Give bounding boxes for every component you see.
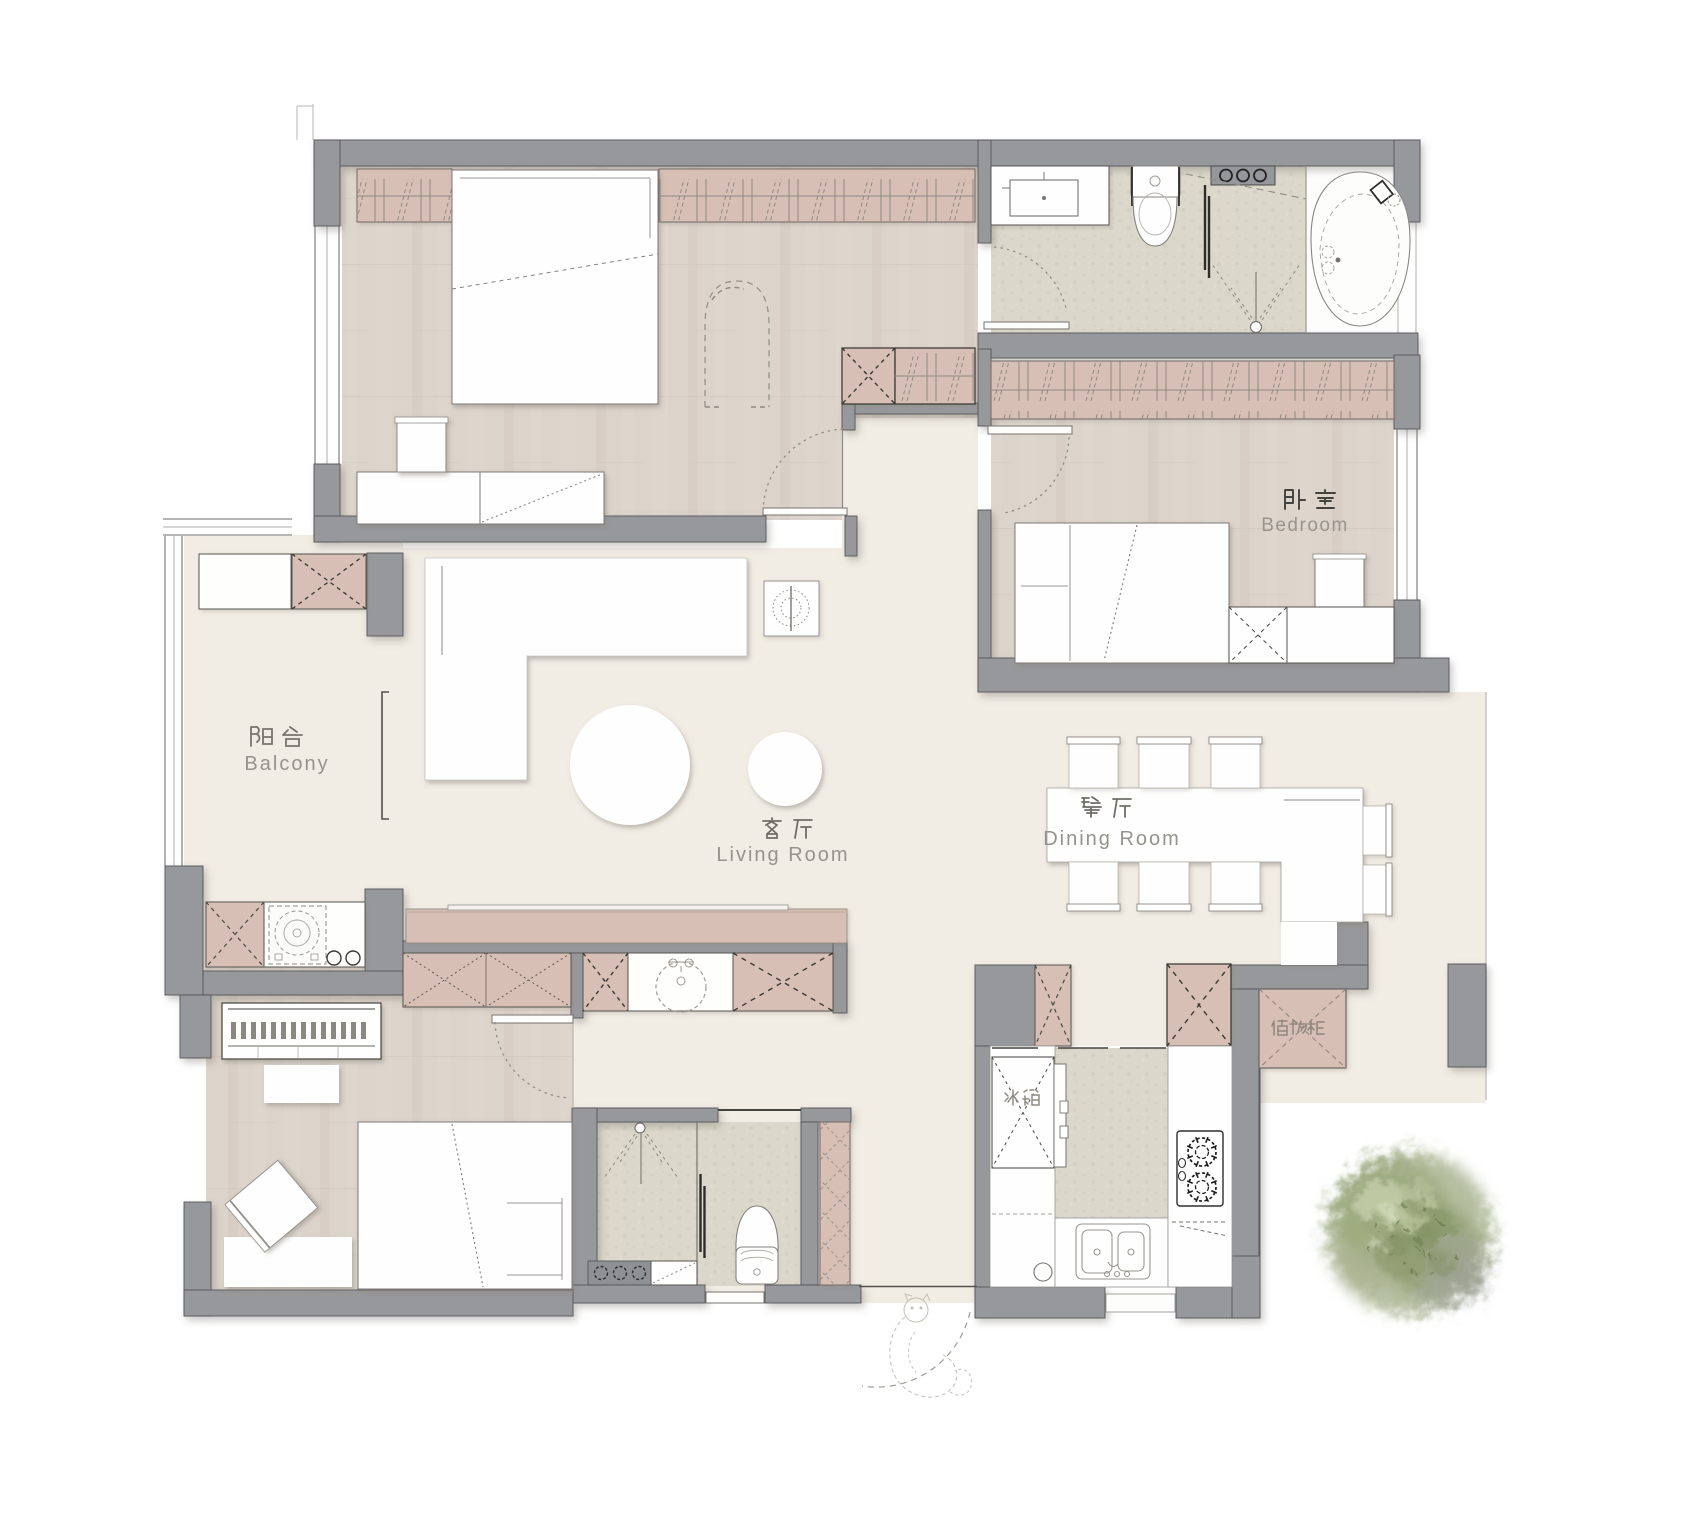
svg-text:Living Room: Living Room: [716, 844, 849, 866]
svg-text:Dining Room: Dining Room: [1043, 828, 1181, 850]
svg-text:Bedroom: Bedroom: [1261, 515, 1349, 536]
svg-text:Balcony: Balcony: [244, 753, 329, 775]
